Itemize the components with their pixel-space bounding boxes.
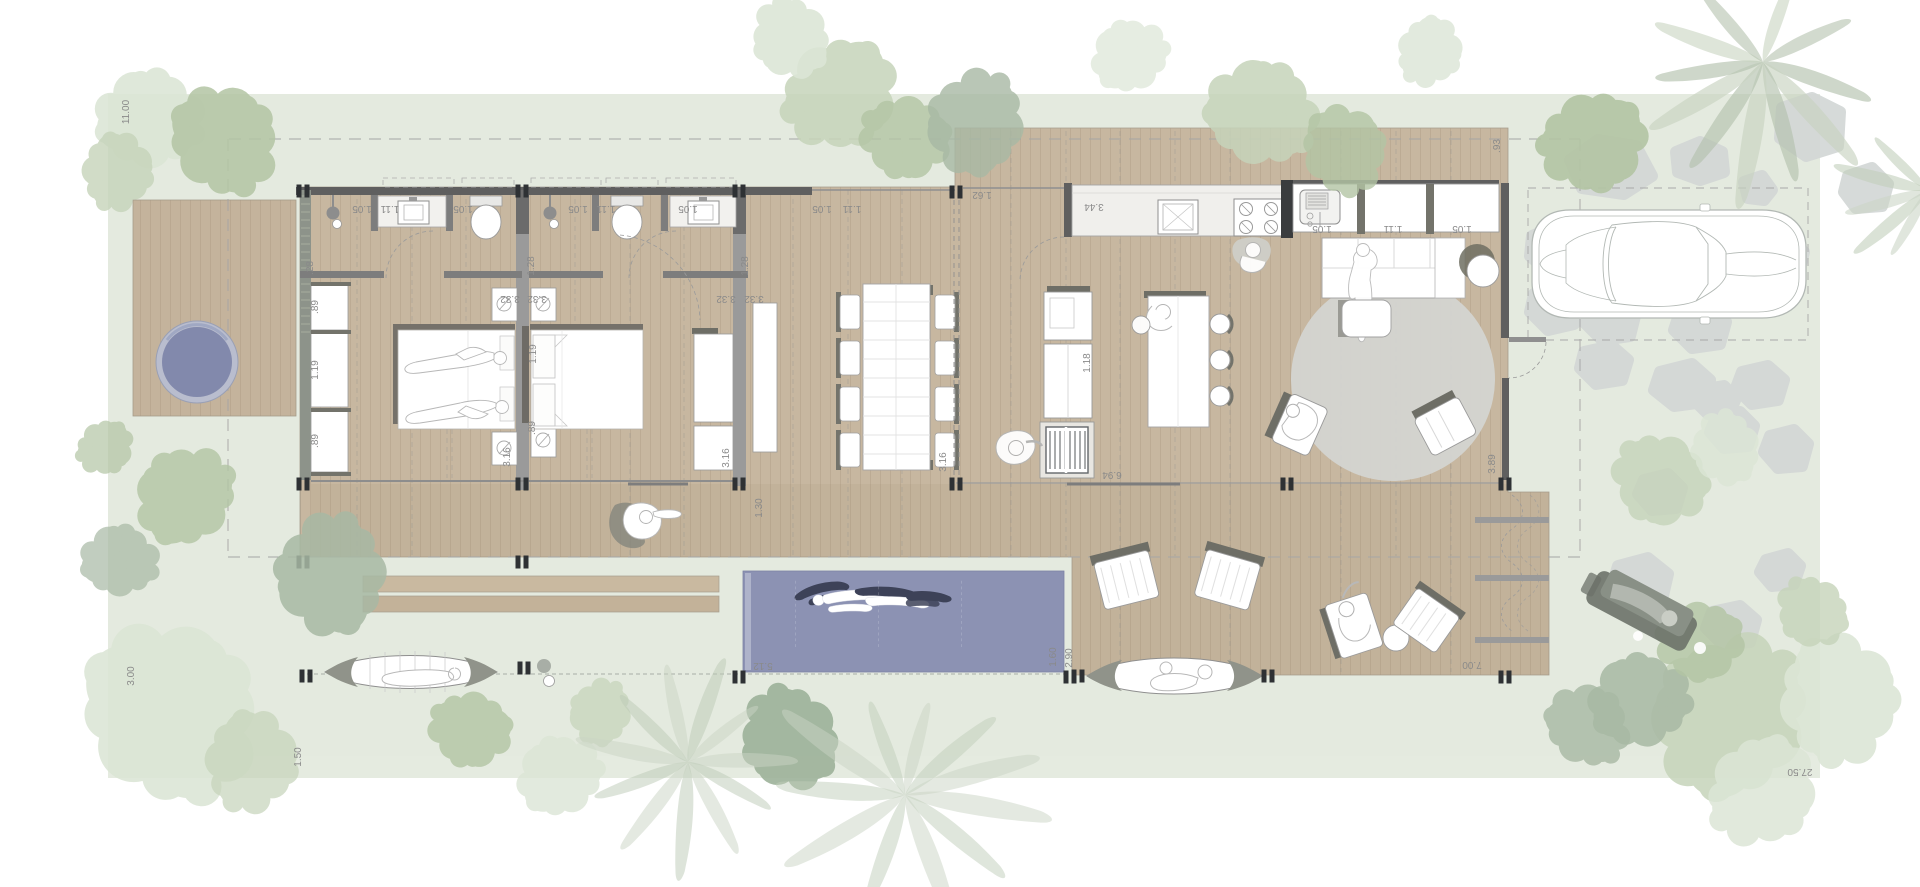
svg-text:1.11: 1.11 [596,203,615,214]
svg-text:1.60: 1.60 [1048,647,1059,667]
svg-text:1.05: 1.05 [812,203,832,214]
svg-text:1.05: 1.05 [453,203,473,214]
svg-text:.28: .28 [305,261,316,275]
svg-text:1.05: 1.05 [568,203,588,214]
svg-text:3.32: 3.32 [744,293,764,304]
svg-text:1.62: 1.62 [972,189,992,200]
svg-text:7.00: 7.00 [1462,659,1482,670]
svg-text:1.28: 1.28 [740,256,751,276]
svg-text:1.05: 1.05 [1452,223,1472,234]
svg-text:1.19: 1.19 [310,360,321,380]
svg-text:1.05: 1.05 [352,203,372,214]
svg-text:3.32: 3.32 [527,293,547,304]
svg-text:3.32: 3.32 [716,293,736,304]
svg-text:1.19: 1.19 [528,344,539,364]
svg-text:1.30: 1.30 [754,498,765,518]
svg-text:3.32: 3.32 [500,293,520,304]
svg-text:.89: .89 [310,300,321,314]
svg-text:.89: .89 [310,434,321,448]
svg-text:1.11: 1.11 [1383,223,1402,234]
svg-text:27.50: 27.50 [1787,766,1812,777]
svg-text:3.16: 3.16 [721,448,732,468]
svg-text:3.44: 3.44 [1084,201,1104,212]
svg-text:1.11: 1.11 [380,203,399,214]
svg-text:3.00: 3.00 [126,666,137,686]
svg-text:1.18: 1.18 [1082,353,1093,373]
svg-text:1.05: 1.05 [678,203,698,214]
svg-text:6.94: 6.94 [1102,469,1122,480]
svg-text:.89: .89 [527,421,538,435]
svg-text:5.12: 5.12 [753,660,773,671]
svg-text:3.89: 3.89 [1487,454,1498,474]
svg-text:1.50: 1.50 [293,747,304,767]
svg-text:.93: .93 [1492,139,1503,153]
svg-text:11.00: 11.00 [121,99,132,124]
svg-text:1.05: 1.05 [1312,223,1332,234]
svg-text:3.16: 3.16 [938,452,949,472]
svg-text:1.11: 1.11 [842,203,861,214]
svg-text:3.16: 3.16 [502,447,513,467]
svg-text:2.90: 2.90 [1064,648,1075,668]
svg-text:1.28: 1.28 [526,256,537,276]
